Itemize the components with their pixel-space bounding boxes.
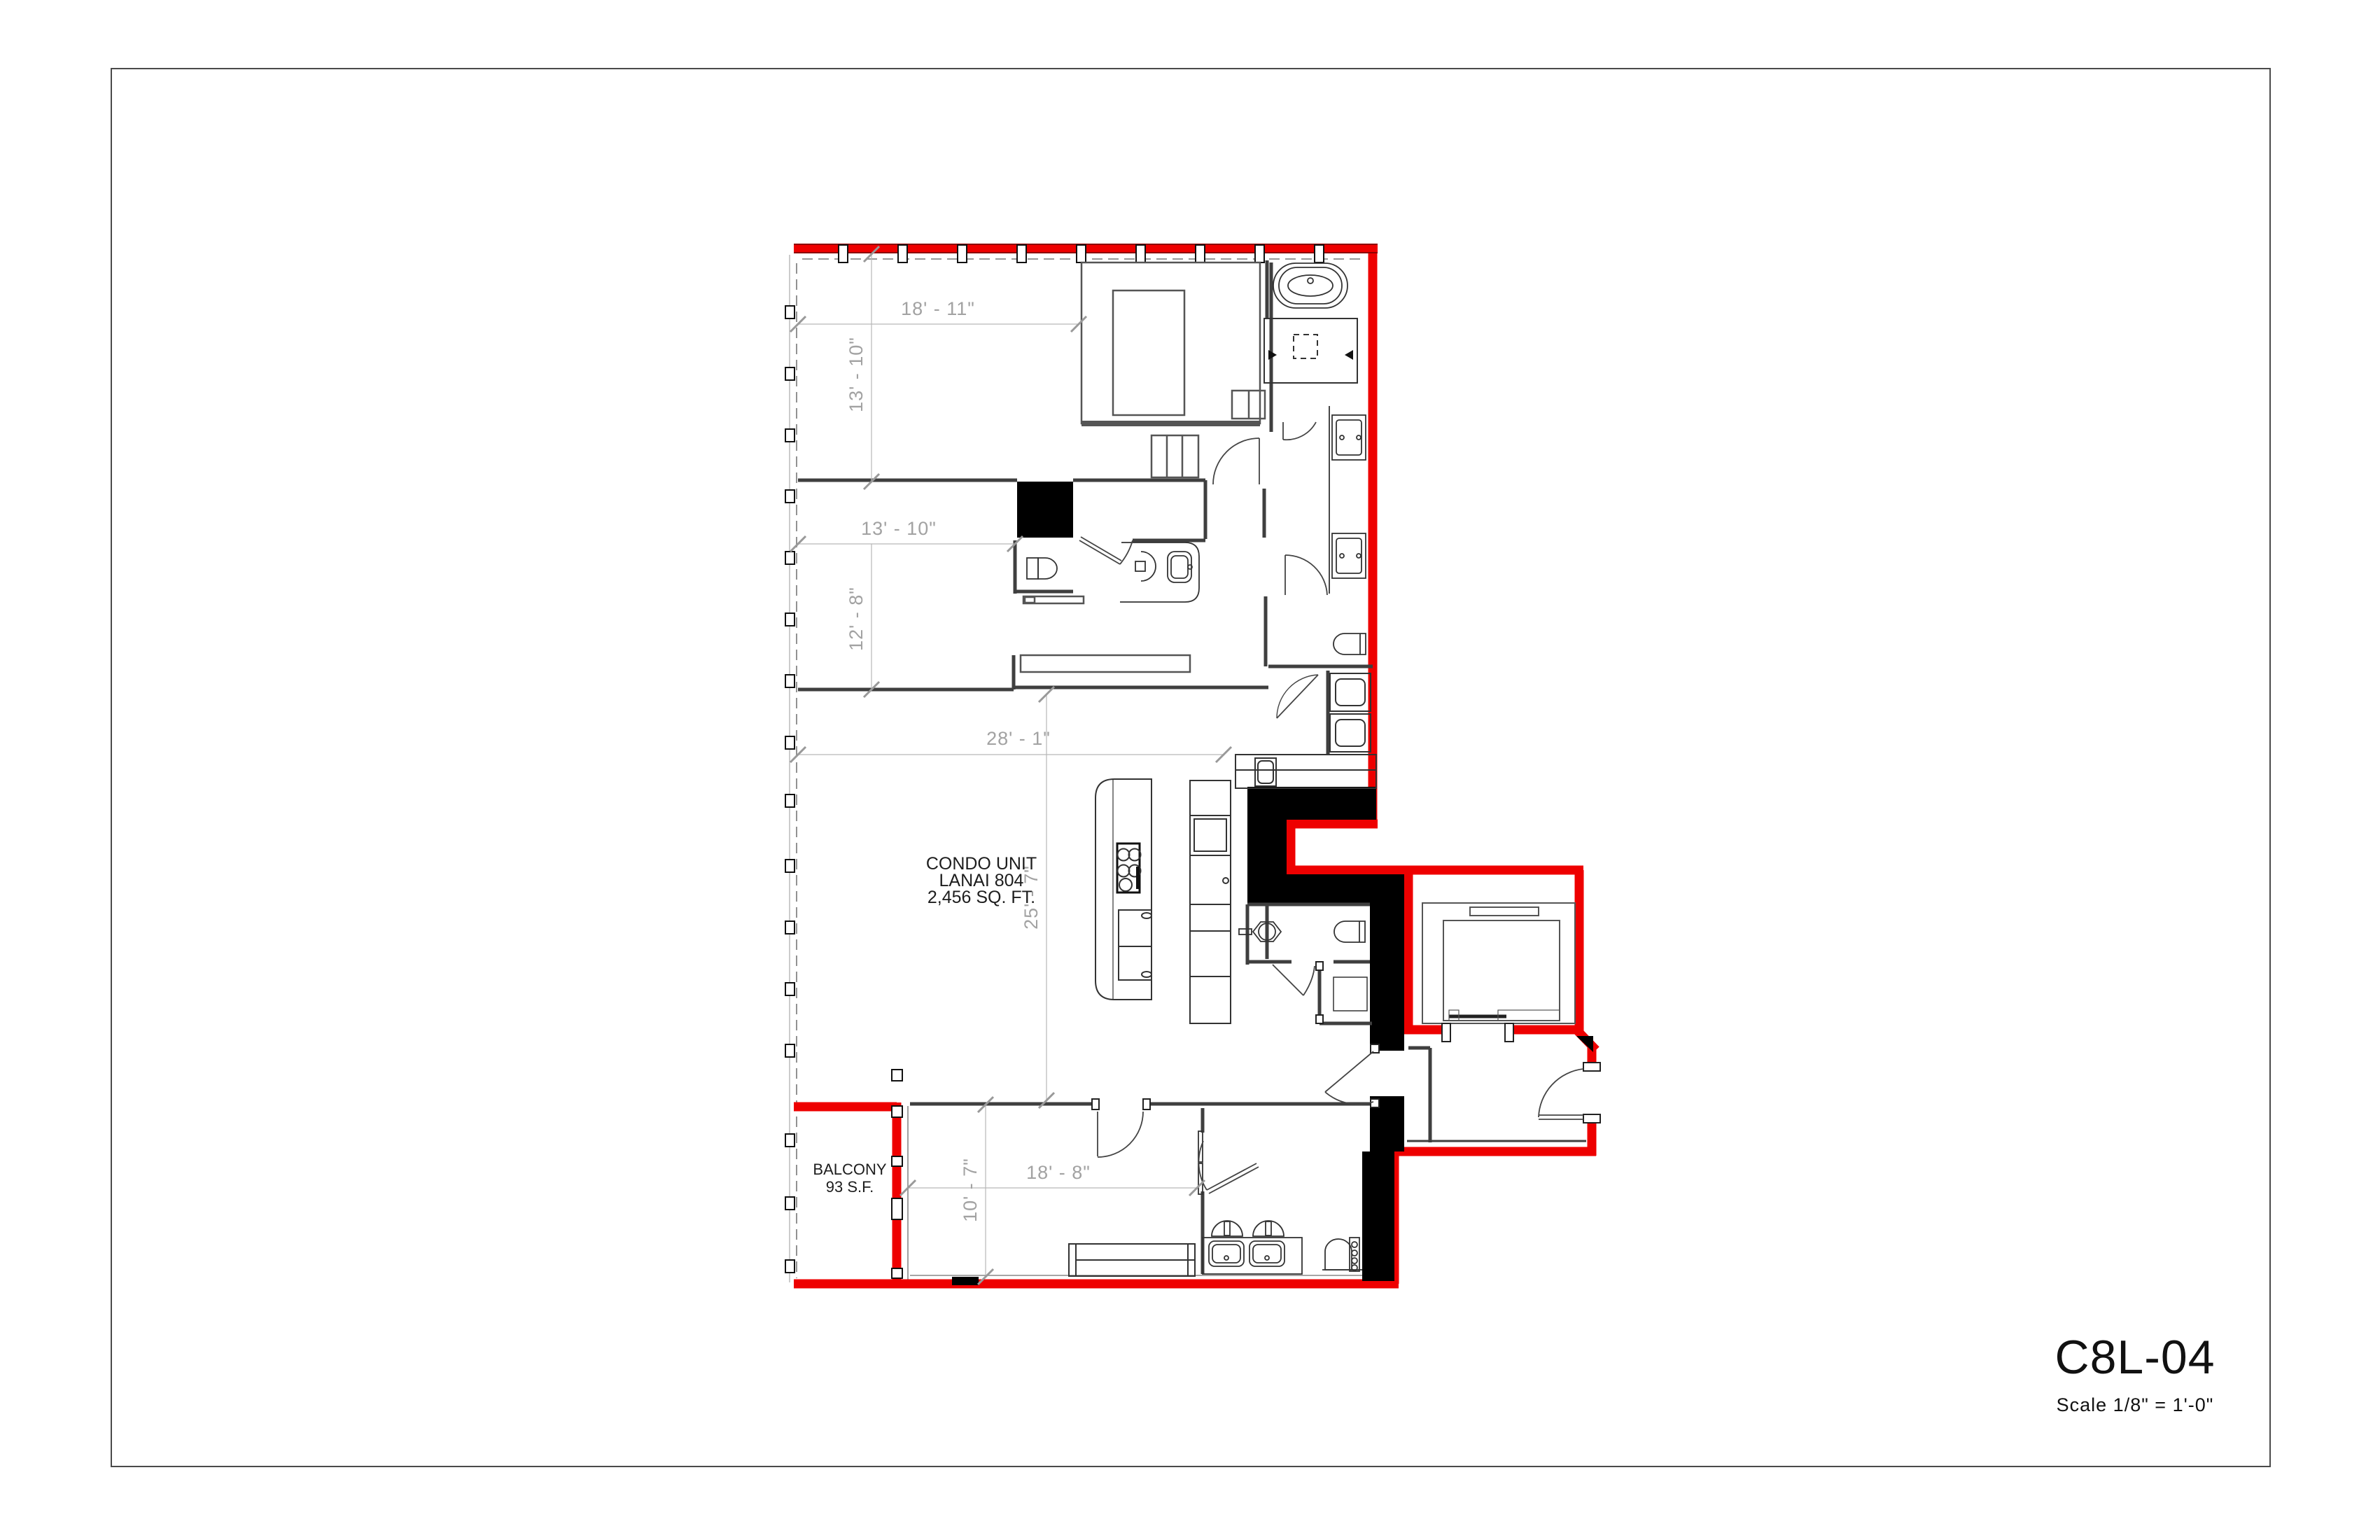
floor-plan: 18' - 11" 13' - 10" 13' - 10" 12' - 8" 2… xyxy=(0,0,2380,1540)
balcony-label-line1: BALCONY xyxy=(813,1161,886,1178)
dim-bed1-height: 13' - 10" xyxy=(846,337,867,412)
shower xyxy=(1264,318,1357,383)
powder-room xyxy=(1239,922,1367,1011)
dim-living-width: 28' - 1" xyxy=(986,728,1051,749)
kitchen-counter xyxy=(1235,755,1376,788)
dimensions: 18' - 11" 13' - 10" 13' - 10" 12' - 8" 2… xyxy=(790,246,1231,1284)
balcony-label-line2: 93 S.F. xyxy=(826,1178,874,1196)
door-jambs xyxy=(1092,962,1600,1123)
sheet-scale: Scale 1/8" = 1'-0" xyxy=(1988,1394,2282,1416)
unit-label-line3: 2,456 SQ. FT. xyxy=(927,888,1035,907)
title-block: C8L-04 Scale 1/8" = 1'-0" xyxy=(1988,1330,2282,1416)
kitchen-island xyxy=(1095,779,1151,1000)
elevator-room xyxy=(1422,903,1575,1023)
dim-bed2-height: 10' - 7" xyxy=(960,1158,981,1222)
interior-walls xyxy=(798,260,1586,1274)
window-walls xyxy=(790,255,1365,1282)
dim-bed2-width: 18' - 8" xyxy=(1026,1162,1091,1183)
room-labels: CONDO UNIT LANAI 804 2,456 SQ. FT. BALCO… xyxy=(813,854,1037,1196)
sheet-title: C8L-04 xyxy=(1988,1330,2282,1385)
bathtub xyxy=(1273,263,1347,308)
dim-top-width: 18' - 11" xyxy=(901,298,975,319)
bed2-bath xyxy=(1198,1131,1359,1274)
unit-boundary xyxy=(794,244,1596,1284)
dim-living-height: 12' - 8" xyxy=(846,587,867,651)
dim-bed1-width: 13' - 10" xyxy=(861,518,937,539)
laundry-stack xyxy=(1330,673,1371,752)
drawing-sheet: 18' - 11" 13' - 10" 13' - 10" 12' - 8" 2… xyxy=(0,0,2380,1540)
bed2-dresser xyxy=(1069,1244,1195,1276)
kitchen-pantry xyxy=(1190,780,1231,1023)
